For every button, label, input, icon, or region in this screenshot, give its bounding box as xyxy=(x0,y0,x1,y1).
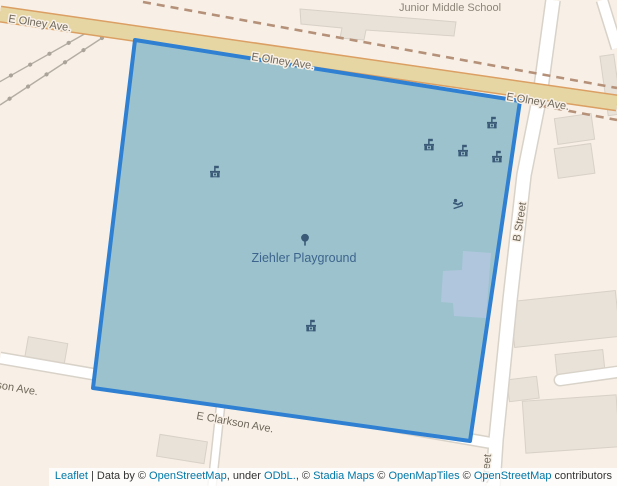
attribution-text: © xyxy=(374,470,388,482)
leaflet-link[interactable]: Leaflet xyxy=(55,470,88,482)
openstreetmap-link-2[interactable]: OpenStreetMap xyxy=(474,470,552,482)
map-canvas[interactable]: Junior Middle School E Olney Ave. E Olne… xyxy=(0,0,617,486)
attribution-text: contributors xyxy=(551,470,612,482)
playground-label: Ziehler Playground xyxy=(252,251,357,265)
attribution-text: , under xyxy=(227,470,264,482)
stadia-maps-link[interactable]: Stadia Maps xyxy=(313,470,374,482)
building xyxy=(507,376,539,401)
building xyxy=(554,144,595,179)
building xyxy=(554,113,594,144)
school-label: Junior Middle School xyxy=(399,2,501,14)
odbl-link[interactable]: ODbL. xyxy=(264,470,296,482)
openstreetmap-link[interactable]: OpenStreetMap xyxy=(149,470,227,482)
attribution-text: , © xyxy=(296,470,313,482)
openmaptiles-link[interactable]: OpenMapTiles xyxy=(388,470,459,482)
map-tiles: Junior Middle School E Olney Ave. E Olne… xyxy=(0,0,617,486)
building xyxy=(522,395,617,453)
attribution-text: | Data by © xyxy=(88,470,149,482)
attribution-text: © xyxy=(460,470,474,482)
attribution-bar: Leaflet | Data by © OpenStreetMap, under… xyxy=(49,468,617,486)
